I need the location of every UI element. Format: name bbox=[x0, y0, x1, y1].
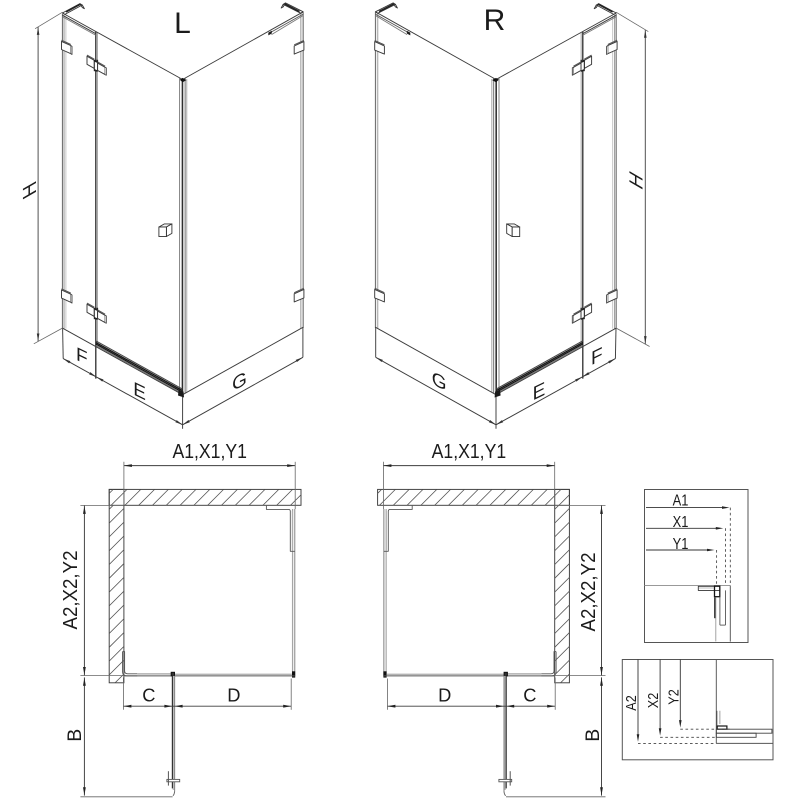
svg-text:A1: A1 bbox=[673, 493, 689, 510]
svg-text:D: D bbox=[227, 685, 240, 706]
svg-text:R: R bbox=[484, 4, 506, 37]
svg-text:A1,X1,Y1: A1,X1,Y1 bbox=[432, 441, 507, 463]
svg-text:C: C bbox=[523, 685, 536, 706]
svg-text:D: D bbox=[438, 685, 451, 706]
svg-text:C: C bbox=[142, 685, 155, 706]
svg-text:X2: X2 bbox=[646, 693, 662, 709]
svg-text:A2,X2,Y2: A2,X2,Y2 bbox=[60, 551, 82, 630]
svg-text:L: L bbox=[174, 7, 191, 40]
svg-text:B: B bbox=[582, 729, 604, 742]
svg-text:B: B bbox=[64, 729, 86, 742]
svg-text:A2,X2,Y2: A2,X2,Y2 bbox=[578, 553, 600, 632]
svg-text:A2: A2 bbox=[624, 695, 640, 711]
svg-text:Y2: Y2 bbox=[666, 689, 682, 705]
svg-text:A1,X1,Y1: A1,X1,Y1 bbox=[172, 441, 247, 463]
